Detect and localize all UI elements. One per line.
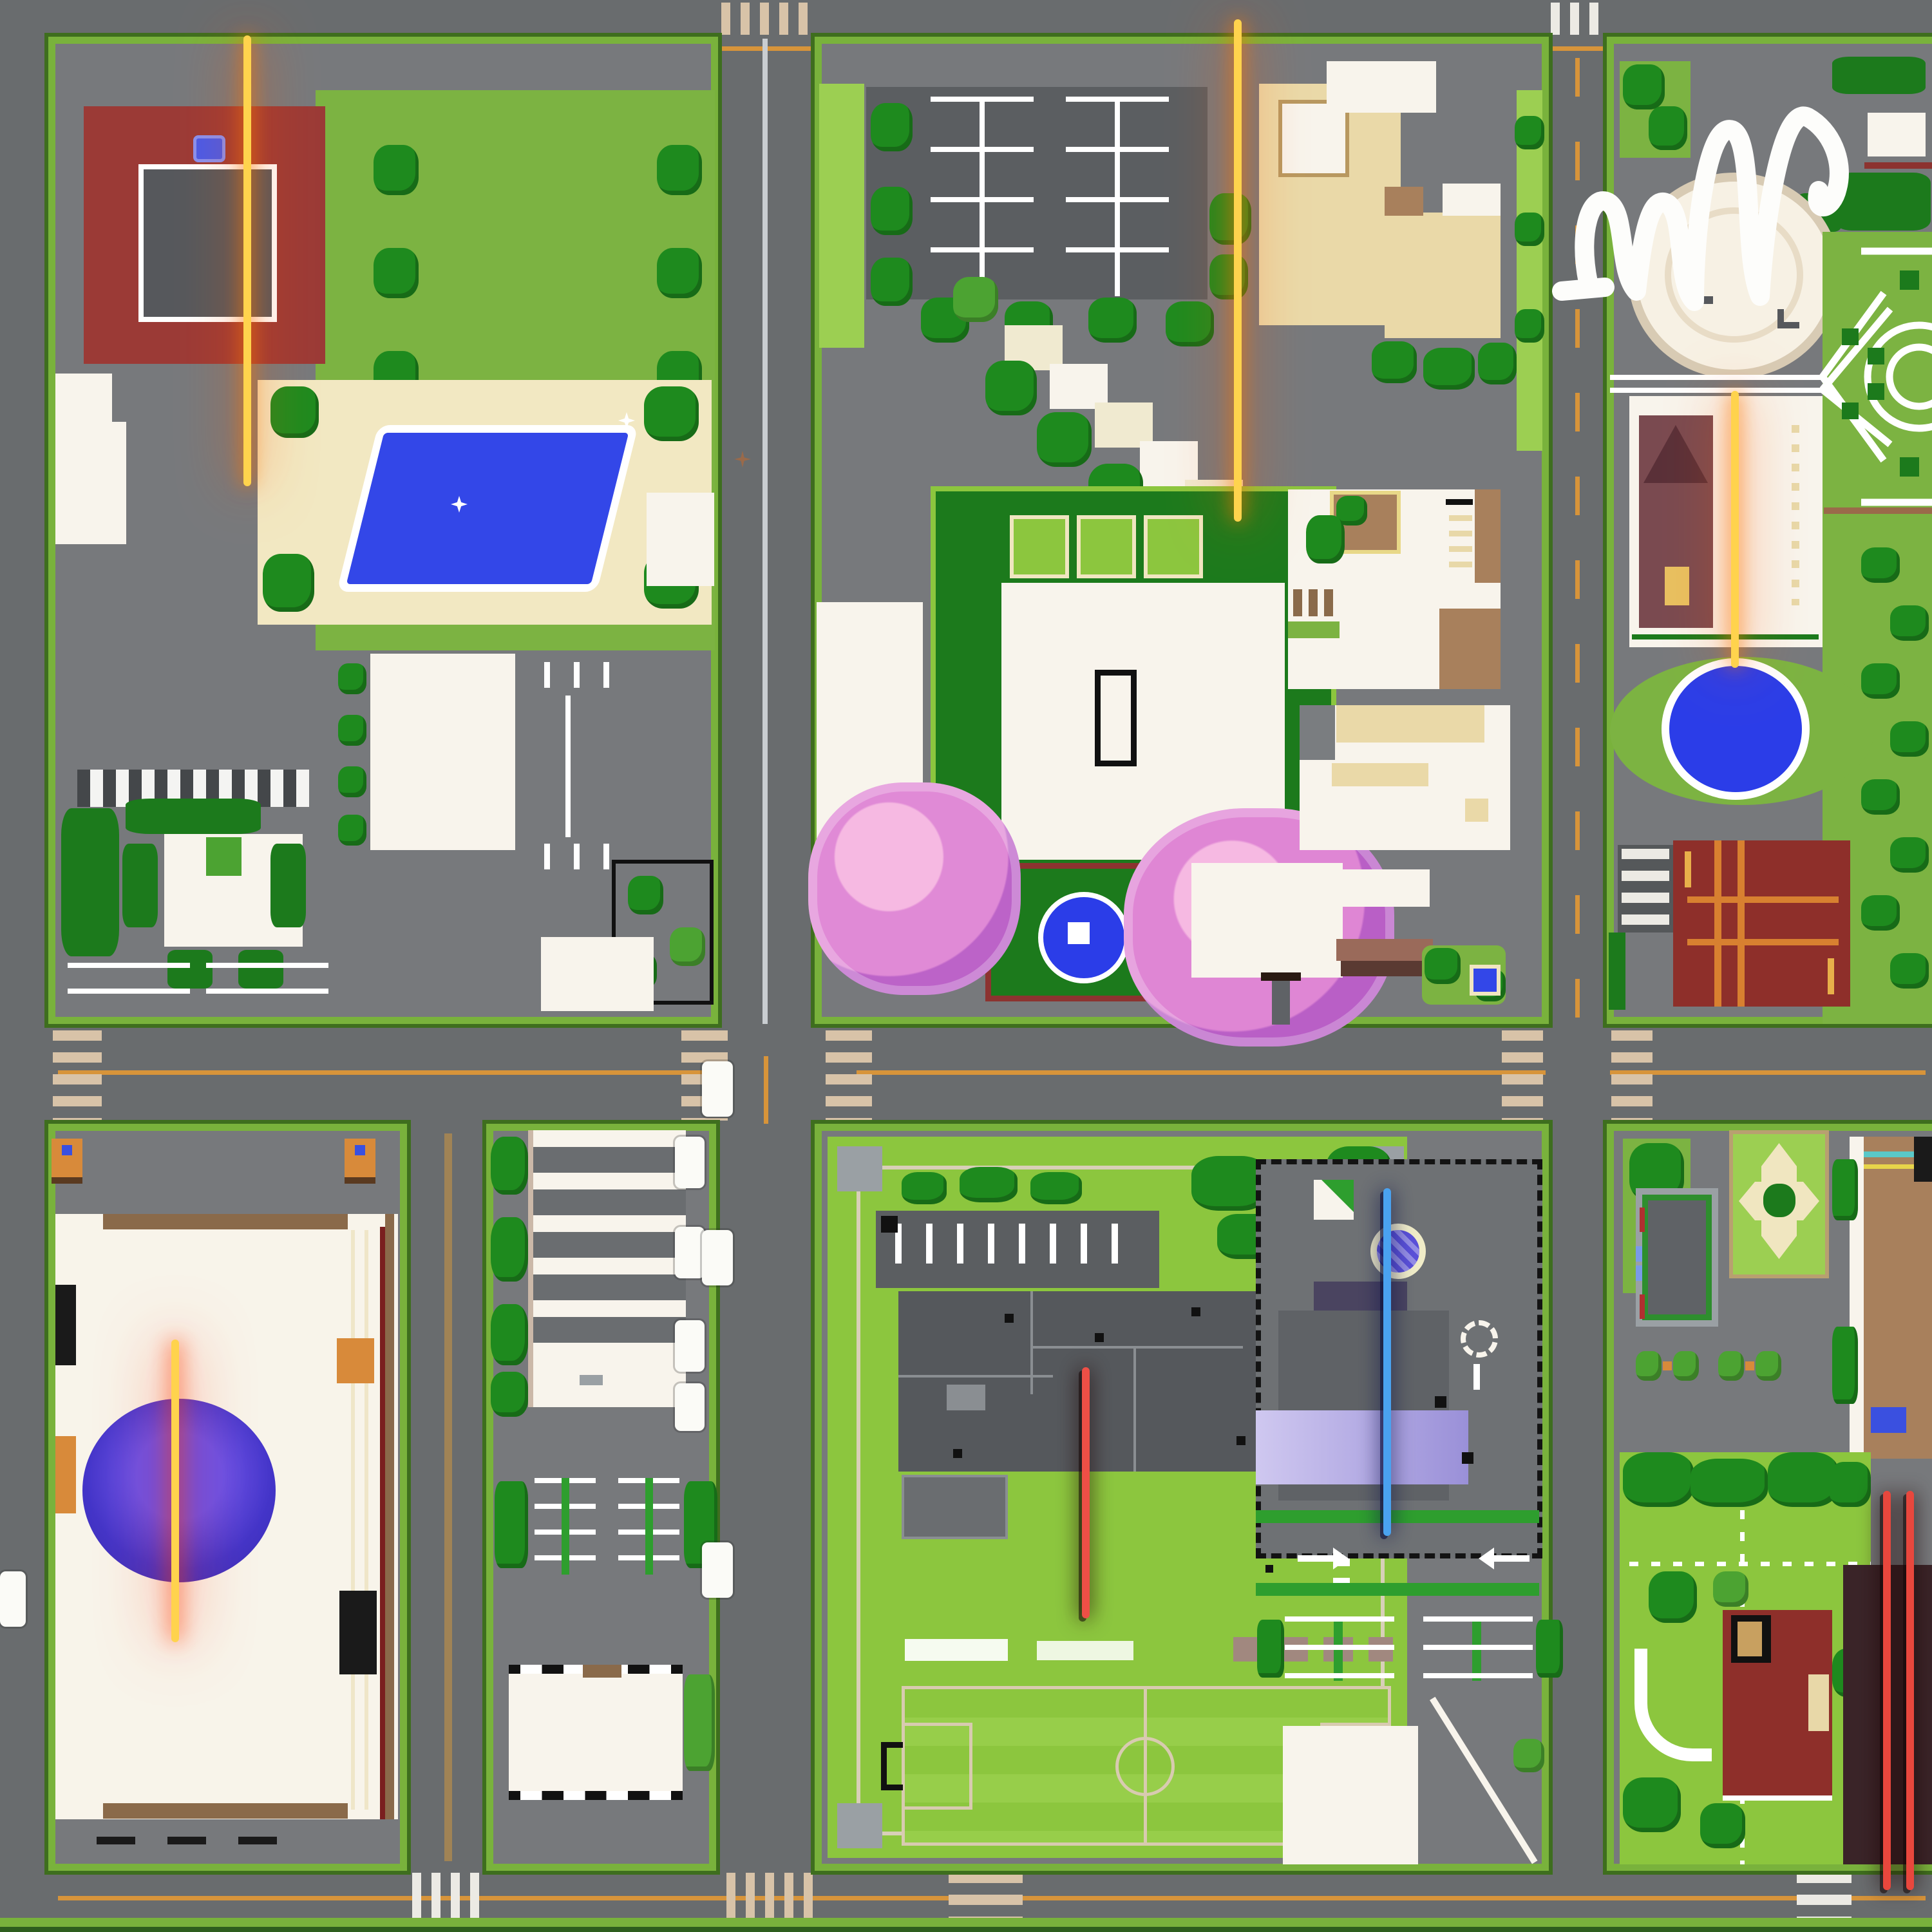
label-pole [1383,1188,1391,1536]
building-a-wing [1332,869,1430,907]
parking-stalls [68,963,190,1014]
map-bottom-dark-strip [0,1927,1932,1932]
parking-group [1285,1616,1394,1681]
garden-path [1610,375,1823,380]
parking-group [1423,1616,1533,1681]
median-v1-orange [764,1056,768,1124]
lane-line-middle-right [1610,1070,1926,1075]
guard-tower [837,1146,882,1191]
lane-line-middle-center [857,1070,1546,1075]
sign-post [1272,981,1290,1025]
garden-plot [1144,515,1203,578]
guard-tower [837,1803,882,1848]
sign-post [1261,972,1301,981]
building-c-roof [1439,609,1501,689]
crosswalk [53,1030,102,1121]
white-building [370,654,515,850]
label-hospital [1234,19,1249,522]
crosswalk [1797,1873,1851,1918]
building-a-deck [1341,961,1428,976]
white-building [55,374,112,422]
goal [881,1742,903,1790]
road-marking [565,696,571,837]
building-d-wing [1443,184,1501,216]
label-pole [171,1340,179,1642]
label-mansion [243,35,259,486]
map-bottom-green-strip [0,1918,1932,1927]
orchard-path [1629,1562,1871,1566]
median-v1-silver [762,39,768,1024]
building-c-roof [1475,489,1501,583]
parking-stalls [206,963,328,1014]
mansion-pool-table [193,135,225,162]
car [0,1571,26,1627]
white-building [55,422,126,544]
crosswalk [726,1873,813,1918]
label-pole [1906,1491,1914,1890]
bank-door [1665,567,1689,605]
garden-house-courtyard [206,837,241,876]
police-roof-lavender [1256,1410,1468,1484]
building-a [1191,863,1343,978]
building-b-roof [1336,705,1484,743]
keypad-circle [1461,1320,1498,1358]
swimming-pool [337,425,639,592]
plaza-center [1763,1184,1795,1217]
road-marking [544,844,621,869]
white-building [541,937,654,1011]
metro-building [1673,840,1850,1007]
garden-plot [1077,515,1136,578]
crosswalk [1622,849,1669,929]
building-a-deck [1336,939,1433,961]
label-market [1883,1491,1914,1890]
label-mall [171,1340,187,1642]
fountain [1662,658,1810,800]
label-pole [1883,1491,1891,1890]
crosswalk [721,3,811,35]
car [702,1061,733,1117]
white-building [647,493,714,586]
penalty-box [905,1723,972,1810]
label-police [1383,1188,1399,1536]
lane-arrow-left [1491,1555,1529,1562]
label-pole [1082,1367,1090,1618]
lane-arrow-right [1298,1555,1336,1562]
parking-group [1066,97,1169,296]
field-center-circle [1115,1737,1175,1796]
label-bank [1731,391,1747,668]
car [702,1230,733,1285]
crosswalk [949,1873,1023,1918]
community-building [1636,1188,1718,1327]
cherry-blossom-tree [808,782,1021,995]
patio-compass [734,451,751,468]
building-b-roof [1332,763,1428,786]
crosswalk [1502,1030,1543,1121]
crosswalk [1551,3,1606,35]
lane-line-middle-left [58,1070,708,1075]
mini-fountain [1470,965,1501,996]
road-marking [544,662,621,688]
white-building [1283,1726,1418,1864]
label-pole [243,35,251,486]
median-mall-road [444,1133,452,1861]
parking-group [931,97,1034,296]
garden-path [1610,388,1823,393]
crosswalk [1611,1030,1653,1121]
crosswalk [826,1030,872,1121]
building-d [1385,213,1501,338]
hospital-roof-access [1095,670,1137,766]
car [702,1542,733,1598]
garden-plot [1010,515,1069,578]
station-building [509,1665,683,1800]
white-building [1327,61,1436,113]
label-pole [1731,391,1739,668]
label-pole [1234,19,1242,522]
crosswalk [412,1873,489,1918]
shrine-pond-center [1068,922,1090,944]
hospital-green-strip [819,84,864,348]
building-d-wing [1385,187,1423,216]
jail-annex [902,1475,1008,1539]
label-jail [1082,1367,1097,1618]
marker-scribble-icon [1539,71,1926,354]
city-map [0,0,1932,1932]
